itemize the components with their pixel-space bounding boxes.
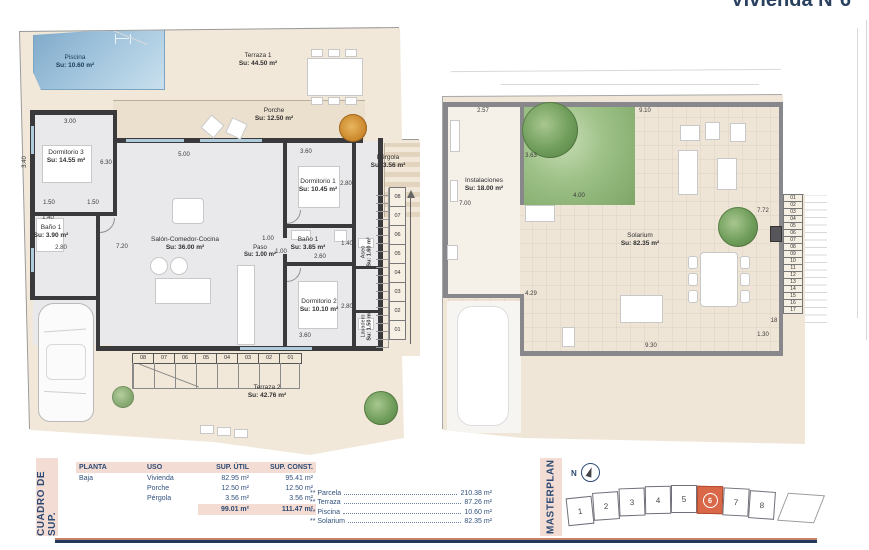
- cell-uso: Porche: [144, 484, 198, 493]
- masterplan-unit: 8: [748, 490, 776, 520]
- masterplan-unit: 1: [566, 496, 595, 527]
- stair-number: 01: [389, 320, 406, 340]
- gate-post: [217, 427, 231, 436]
- room-label-terraza1: Terraza 1Su: 44.50 m²: [239, 52, 277, 68]
- summary-side-label: CUADRO DE SUP.: [36, 458, 58, 536]
- spacer: [144, 504, 198, 515]
- chair: [740, 290, 750, 303]
- masterplan-unit: 6: [697, 486, 723, 514]
- tree-icon: [339, 114, 367, 142]
- room-label-salon: Salón-Comedor-CocinaSu: 36.00 m²: [151, 236, 219, 252]
- column-header: SUP. ÚTIL: [198, 462, 252, 473]
- masterplan-side-label: MASTERPLAN: [540, 458, 562, 536]
- masterplan-unit: 5: [671, 485, 697, 513]
- total-const: 111.47 m²: [252, 504, 316, 515]
- table: [717, 158, 737, 190]
- neighbor-ghost-line: [501, 84, 759, 85]
- car-rear-window: [44, 391, 86, 394]
- masterplan-tail-shape: [777, 493, 825, 524]
- counter: [680, 125, 700, 141]
- masterplan-unit: 3: [619, 488, 646, 517]
- chair: [328, 97, 340, 105]
- dim-label: 1.50: [43, 200, 55, 206]
- stair-number: 08: [133, 354, 154, 363]
- wall: [113, 110, 117, 216]
- room-label-dormitorio3: Dormitorio 3Su: 14.55 m²: [47, 149, 85, 165]
- outdoor-table: [700, 252, 738, 307]
- dim-label: 3.63: [525, 153, 537, 159]
- chair: [311, 49, 323, 57]
- stair-diagonal: [139, 364, 199, 388]
- leader-dots: [344, 503, 462, 504]
- unit-number: 4: [656, 495, 661, 504]
- extras-row: ** Solarium 82.35 m²: [310, 516, 492, 526]
- chair: [740, 273, 750, 286]
- dining-table: [307, 58, 363, 96]
- stair-number: 06: [389, 225, 406, 245]
- dim-label: 7.00: [459, 201, 471, 207]
- dim-label: 1.40: [42, 215, 54, 221]
- cell-util: 82.95 m²: [198, 474, 252, 483]
- stair-number: 07: [389, 206, 406, 226]
- car-roof: [46, 344, 86, 380]
- chair: [345, 97, 357, 105]
- chair: [328, 49, 340, 57]
- counter: [705, 122, 720, 140]
- car: [38, 303, 94, 422]
- gate-post: [200, 425, 214, 434]
- outdoor-kitchen: [620, 295, 663, 323]
- stair-number: 03: [389, 282, 406, 302]
- stairs-up-arrow: [410, 198, 411, 344]
- dim-label: 3.60: [300, 149, 312, 155]
- room-label-dormitorio2: Dormitorio 2Su: 10.10 m²: [300, 298, 338, 314]
- extras-name: ** Terraza: [310, 499, 341, 506]
- dim-label: 2.80: [340, 181, 352, 187]
- cell-const: 95.41 m²: [252, 474, 316, 483]
- column-header: PLANTA: [76, 462, 144, 473]
- compass-needle: [586, 466, 595, 477]
- extras-row: ** Parcela 210.38 m²: [310, 487, 492, 497]
- chair: [688, 290, 698, 303]
- chair: [311, 97, 323, 105]
- dim-label: 7.72: [757, 208, 769, 214]
- bush-icon: [112, 386, 134, 408]
- cabinet: [678, 150, 698, 195]
- unit-number: 6: [702, 492, 717, 507]
- door: [770, 226, 782, 242]
- room-label-terraza2: Terraza 2Su: 42.76 m²: [248, 384, 286, 400]
- pool: [33, 26, 165, 90]
- room-label-solarium: SolariumSu: 82.35 m²: [621, 232, 659, 248]
- garden-steps: [525, 205, 555, 222]
- stair-number: 04: [389, 263, 406, 283]
- page-title: Vivienda Nº6: [731, 0, 851, 12]
- dim-label: 6.30: [100, 160, 112, 166]
- dim-label: 18: [771, 318, 778, 324]
- kitchen-island: [155, 278, 211, 304]
- dim-label: 2.57: [477, 108, 489, 114]
- wall: [448, 102, 783, 107]
- leader-dots: [348, 522, 461, 523]
- dim-label: 3.00: [64, 119, 76, 125]
- dim-label: 3.40: [22, 156, 28, 168]
- floorplan-solarium: 0102030405060708091011121314151617 Insta…: [437, 40, 835, 462]
- room-label-pergola: PérgolaSu: 3.56 m²: [371, 154, 406, 170]
- leader-dots: [343, 513, 461, 514]
- window: [240, 347, 312, 350]
- cell-util: 3.56 m²: [198, 494, 252, 503]
- gate-post: [234, 429, 248, 438]
- room-label-porche: PorcheSu: 12.50 m²: [255, 107, 293, 123]
- spacer: [76, 504, 144, 515]
- wall: [520, 102, 524, 205]
- cell-uso: Vivienda: [144, 474, 198, 483]
- extras-value: 82.35 m²: [464, 518, 492, 525]
- masterplan-units: 1 2 3 4 5 6 7 8: [567, 485, 775, 525]
- shelf: [450, 180, 458, 202]
- chair: [688, 256, 698, 269]
- stair-number: 01: [280, 354, 301, 363]
- wall: [443, 102, 448, 298]
- tree-icon: [364, 391, 398, 425]
- room-label-lavadero: LavaderoSu: 1.50 m²: [361, 311, 374, 340]
- extras-name: ** Parcela: [310, 490, 341, 497]
- dim-label: 7.20: [116, 244, 128, 250]
- cell-const: 12.50 m²: [252, 484, 316, 493]
- column-header: SUP. CONST.: [252, 462, 316, 473]
- dim-label: 5.00: [178, 152, 190, 158]
- tree-icon: [522, 102, 578, 158]
- stair-number: 02: [389, 301, 406, 321]
- extras-value: 87.26 m²: [464, 499, 492, 506]
- extras-name: ** Piscina: [310, 509, 340, 516]
- leader-dots: [344, 494, 457, 495]
- extras-value: 10.60 m²: [464, 509, 492, 516]
- extras-row: ** Terraza 87.26 m²: [310, 497, 492, 507]
- dim-label: 1.00: [275, 249, 287, 255]
- pool-ladder-icon: [115, 38, 129, 39]
- wall: [30, 110, 117, 115]
- stair-number: 05: [196, 354, 217, 363]
- wall: [520, 298, 524, 356]
- surface-table: PLANTAUSOSUP. ÚTILSUP. CONST. Baja Vivie…: [76, 462, 316, 515]
- wall: [287, 224, 352, 228]
- room-label-aseo: AseoSu: 1.60 m²: [361, 237, 374, 266]
- stair-number: 17: [783, 306, 803, 314]
- stair-number: 06: [175, 354, 196, 363]
- room-label-dormitorio1: Dormitorio 1Su: 10.45 m²: [299, 178, 337, 194]
- stair-number: 05: [389, 244, 406, 264]
- skylight: [562, 327, 575, 347]
- wall: [30, 296, 100, 300]
- cell-planta: [76, 484, 144, 493]
- cell-planta: Baja: [76, 474, 144, 483]
- room-label-paso: PasoSu: 1.00 m²: [244, 245, 276, 259]
- car-windshield: [44, 329, 86, 333]
- unit-number: 5: [682, 495, 686, 504]
- dim-label: 4.00: [573, 193, 585, 199]
- unit-number: 1: [577, 506, 582, 515]
- stairs-ghost-treads: [805, 195, 827, 323]
- stairs-side: 0807060504030201: [389, 188, 406, 340]
- stair-number: 02: [259, 354, 280, 363]
- dim-label: 2.60: [314, 254, 326, 260]
- counter: [730, 123, 746, 142]
- north-label: N: [571, 469, 577, 478]
- stair-number: 03: [238, 354, 259, 363]
- column-header: USO: [144, 462, 198, 473]
- stairs-side-treads: [376, 188, 389, 348]
- chair: [345, 49, 357, 57]
- dim-label: 1.40: [341, 241, 353, 247]
- total-util: 99.01 m²: [198, 504, 252, 515]
- dim-label: 4.29: [525, 291, 537, 297]
- window: [126, 139, 184, 142]
- tree-icon: [718, 207, 758, 247]
- cell-planta: [76, 494, 144, 503]
- room-label-bano1-der: Baño 1Su: 3.85 m²: [291, 236, 326, 252]
- stair-number: 08: [389, 187, 406, 207]
- cell-const: 3.56 m²: [252, 494, 316, 503]
- compass-icon: [581, 463, 600, 482]
- unit-number: 2: [603, 501, 608, 510]
- room-label-bano1-izq: Baño 1Su: 3.90 m²: [34, 224, 69, 240]
- page-edge-ghost: [857, 28, 858, 318]
- unit-number: 3: [630, 497, 635, 506]
- extras-row: ** Piscina 10.60 m²: [310, 506, 492, 516]
- kitchen-counter: [237, 265, 255, 345]
- unit-number: 8: [759, 500, 764, 509]
- wall: [520, 351, 783, 356]
- page-edge-ghost: [866, 20, 867, 340]
- cell-uso: Pérgola: [144, 494, 198, 503]
- sofa: [172, 198, 204, 224]
- cell-util: 12.50 m²: [198, 484, 252, 493]
- dim-label: 2.80: [341, 304, 353, 310]
- chair: [688, 273, 698, 286]
- room-label-piscina: PiscinaSu: 10.60 m²: [56, 54, 94, 70]
- floorplan-ground: 0807060504030201 0807060504030201 Piscin…: [8, 26, 432, 458]
- window: [31, 126, 34, 154]
- wall: [287, 262, 352, 266]
- ghost-car: [457, 306, 509, 426]
- window: [200, 139, 262, 142]
- dim-label: 1.00: [262, 236, 274, 242]
- dim-label: 9.10: [639, 108, 651, 114]
- footer-rule: [55, 540, 817, 543]
- dim-label: 2.80: [55, 245, 67, 251]
- room-label-instalaciones: InstalacionesSu: 18.00 m²: [465, 177, 503, 193]
- round-table: [170, 257, 188, 275]
- extras-value: 210.38 m²: [460, 490, 492, 497]
- extras-list: ** Parcela 210.38 m² ** Terraza 87.26 m²…: [310, 487, 492, 525]
- stair-number: 07: [154, 354, 175, 363]
- masterplan-unit: 7: [722, 487, 749, 516]
- window: [31, 248, 34, 272]
- dim-label: 1.30: [757, 332, 769, 338]
- skylight: [447, 245, 458, 260]
- dim-label: 9.30: [645, 343, 657, 349]
- unit-number: 7: [734, 497, 739, 506]
- wall: [443, 294, 524, 298]
- neighbor-ghost-line: [451, 69, 781, 72]
- extras-name: ** Solarium: [310, 518, 345, 525]
- plan-sheet: Vivienda Nº6: [0, 0, 869, 550]
- chair: [740, 256, 750, 269]
- dim-label: 3.60: [299, 333, 311, 339]
- dim-label: 1.50: [87, 200, 99, 206]
- stairs-up-arrowhead: [407, 190, 415, 198]
- stair-number: 04: [217, 354, 238, 363]
- stairs-column: 0102030405060708091011121314151617: [783, 195, 803, 314]
- masterplan-unit: 2: [592, 491, 620, 521]
- shelf: [450, 120, 460, 152]
- round-table: [150, 257, 168, 275]
- masterplan-unit: 4: [645, 486, 671, 514]
- wall: [96, 300, 100, 351]
